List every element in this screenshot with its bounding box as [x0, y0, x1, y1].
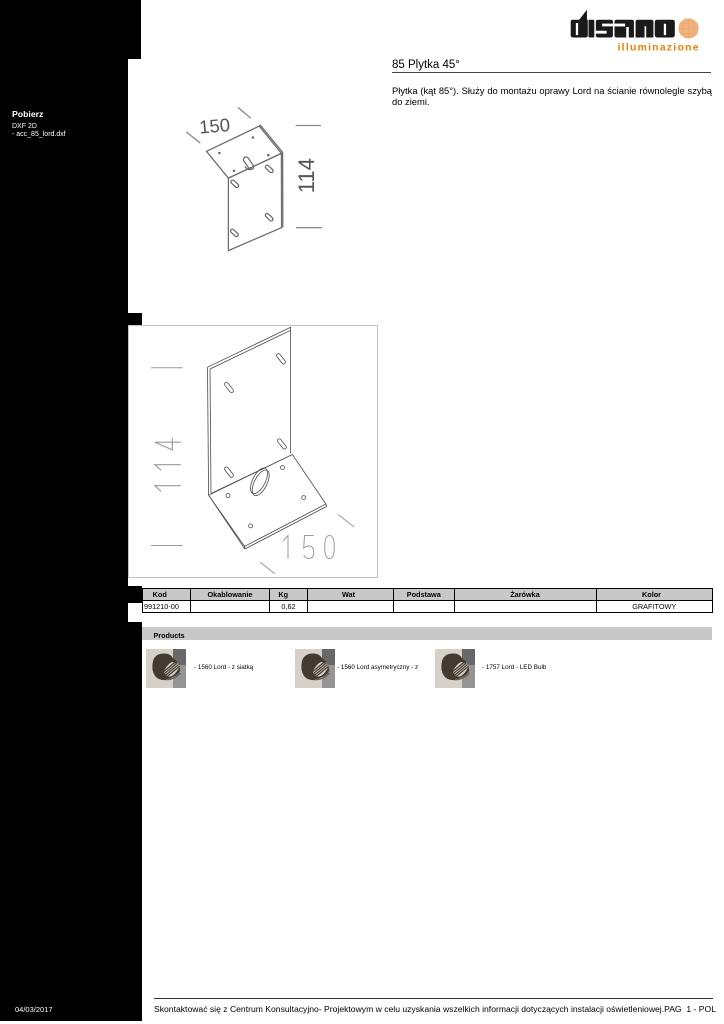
svg-text:150: 150 [198, 114, 231, 138]
svg-text:illuminazione: illuminazione [618, 43, 699, 54]
svg-text:114: 114 [294, 158, 319, 193]
